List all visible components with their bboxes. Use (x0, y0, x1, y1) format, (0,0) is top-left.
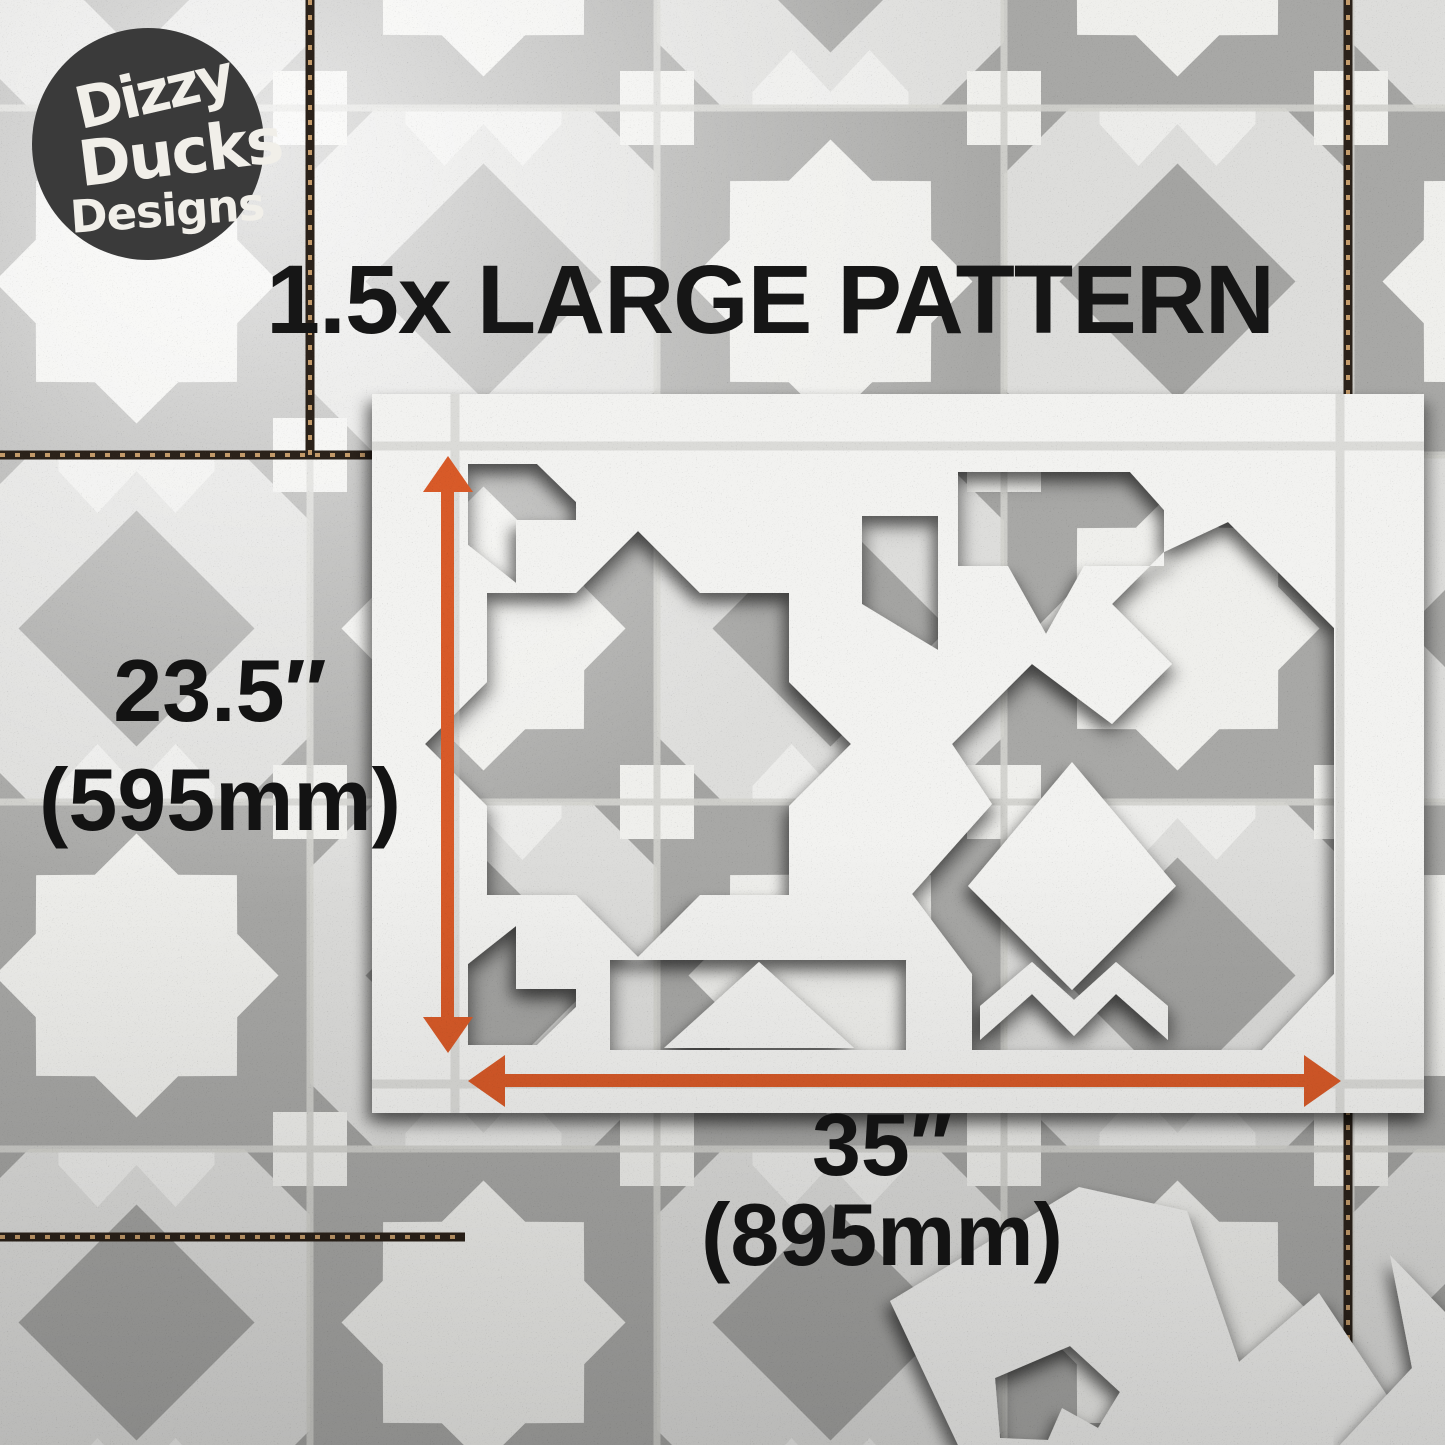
width-inches: 35″ (598, 1100, 1166, 1190)
dizzy-ducks-logo: Dizzy Ducks Designs (32, 28, 264, 260)
height-dimension-label: 23.5″ (595mm) (0, 636, 440, 854)
height-mm: (595mm) (0, 745, 440, 854)
product-image-canvas: Dizzy Ducks Designs 1.5x LARGE PATTERN 2… (0, 0, 1445, 1445)
page-title: 1.5x LARGE PATTERN (210, 244, 1330, 356)
width-mm: (895mm) (598, 1190, 1166, 1280)
width-dimension-label: 35″ (895mm) (598, 1100, 1166, 1280)
height-inches: 23.5″ (0, 636, 440, 745)
